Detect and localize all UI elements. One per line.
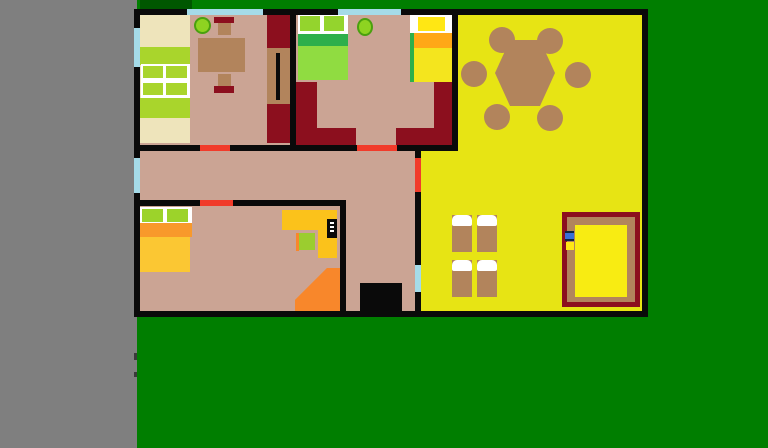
plant-icon	[357, 18, 373, 36]
window-icon	[134, 158, 140, 193]
paint-speck	[134, 372, 137, 377]
dark-green-strip	[140, 0, 192, 9]
paint-speck	[134, 353, 137, 360]
table	[198, 38, 245, 72]
door-icon	[357, 145, 397, 151]
sofa-left-foot	[317, 128, 356, 145]
window-icon	[134, 28, 140, 67]
blue-item-icon	[565, 231, 574, 241]
wall-bedroom-living	[452, 9, 458, 151]
single-bed-pillow	[452, 260, 472, 271]
sofa-right-column	[434, 82, 452, 145]
door-icon	[200, 145, 230, 151]
bed-yellow-body	[414, 48, 453, 82]
single-bed-pillow	[477, 260, 497, 271]
tv-screen-glyph	[330, 226, 334, 228]
wardrobe-bottom	[267, 104, 290, 143]
round-chair	[537, 105, 563, 131]
round-chair	[461, 61, 487, 87]
entrance-doorway	[360, 283, 402, 317]
pillow	[324, 16, 344, 31]
round-chair	[489, 27, 515, 53]
shelf-cushion	[166, 66, 187, 78]
wall-bottom-bedroom-north	[134, 200, 346, 206]
wardrobe-top	[267, 15, 290, 48]
framed-bed-mattress	[575, 225, 627, 297]
wall-between-bedrooms	[290, 9, 296, 151]
bed-green-body	[298, 46, 348, 80]
window-icon	[338, 9, 401, 15]
pillow	[418, 17, 445, 31]
stool-seat	[218, 74, 231, 86]
shelf-bed-stripe	[140, 47, 190, 65]
door-icon	[200, 200, 233, 206]
gray-workspace-margin	[0, 0, 137, 448]
pillow	[167, 209, 188, 222]
tv-screen-glyph	[330, 222, 334, 224]
bed-yellow-stripe	[414, 33, 453, 48]
single-bed-pillow	[452, 215, 472, 226]
shelf-cushion	[143, 66, 163, 78]
stool-seat	[218, 23, 231, 35]
round-chair	[565, 62, 591, 88]
bed-orange-stripe	[140, 223, 192, 237]
single-bed-pillow	[477, 215, 497, 226]
wall-hallway-north	[134, 145, 458, 151]
tv-screen-glyph	[330, 230, 334, 232]
pillow	[142, 209, 163, 222]
window-icon	[415, 265, 421, 292]
window-icon	[187, 9, 263, 15]
floor-plan-canvas[interactable]	[0, 0, 768, 448]
yellow-item-icon	[566, 242, 574, 250]
sofa-left-column	[296, 82, 317, 145]
stool-cap	[214, 86, 234, 93]
plant-icon	[194, 17, 211, 34]
bed-green-stripe	[298, 34, 348, 46]
wall-bottom-bedroom-east	[340, 200, 346, 311]
bed-orange-body	[140, 237, 190, 272]
round-chair	[537, 28, 563, 54]
sofa-right-foot	[396, 128, 434, 145]
wall-right	[642, 9, 648, 317]
desk-chair	[299, 233, 315, 250]
shelf-cushion	[143, 83, 163, 95]
shelf-bed-stripe	[140, 98, 190, 118]
door-icon	[415, 158, 421, 192]
pillow	[300, 16, 320, 31]
shelf-cushion	[166, 83, 187, 95]
round-chair	[484, 104, 510, 130]
wardrobe-handle	[276, 53, 280, 100]
